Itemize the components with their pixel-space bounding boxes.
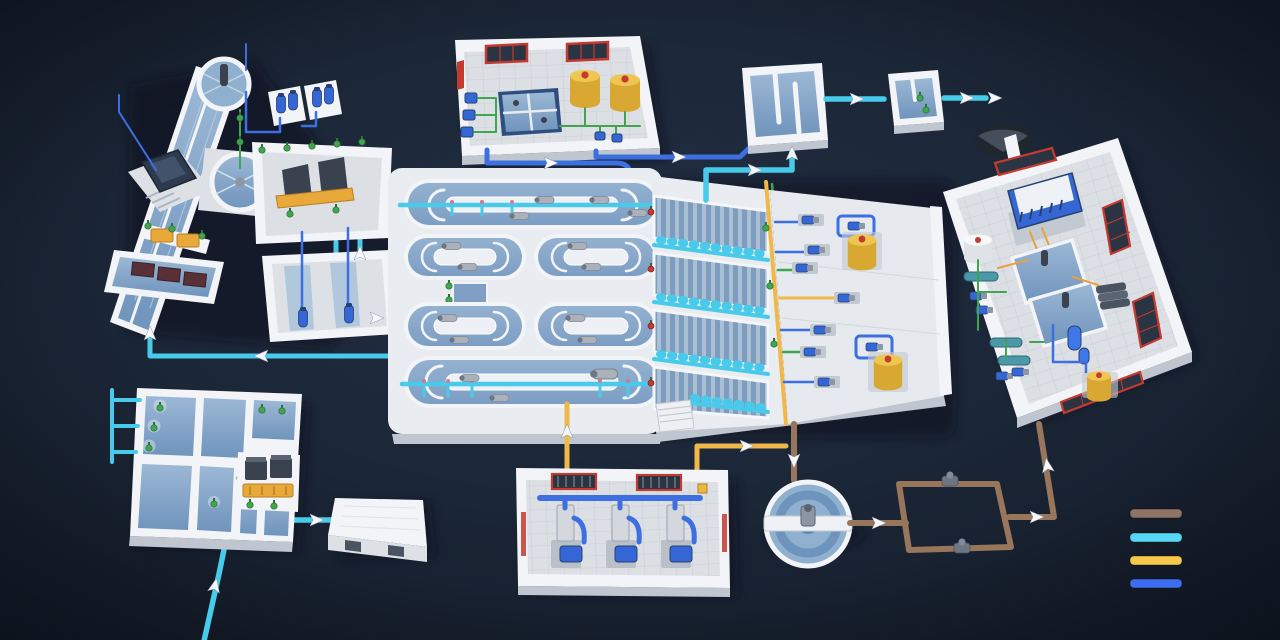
oxidation-ditch [404,234,526,280]
legend-swatch-sludge [1130,509,1182,518]
door [388,545,404,557]
pump-gallery [770,190,952,424]
chemical-tank [610,74,640,112]
legend-swatch-water [1130,533,1182,542]
basin-mixer [1041,250,1048,266]
window [486,44,527,63]
door [345,540,361,552]
window [637,475,681,490]
mixing-basin [498,88,562,136]
chemical-dosing-building [455,36,660,165]
wall-marking [521,512,526,556]
basin-mixer [1062,292,1069,308]
west-header-pipe [112,390,140,462]
stacked-press-unit [1096,282,1131,310]
legend-swatch-chemical [1130,579,1182,588]
sampling-tank [888,70,944,134]
wall-marking [722,514,727,552]
transfer-pump [595,132,605,140]
scraper-hub [235,177,245,187]
yellow-drum [1082,371,1118,401]
plant-illustration [0,0,1280,640]
screen-module [157,267,180,282]
side-door [457,60,464,90]
pretreatment-basin-complex [112,388,302,552]
legend-swatch-air [1130,556,1182,565]
scene-svg [0,0,1280,640]
oxidation-ditch [534,234,658,280]
platform-stairs [656,400,694,432]
chemical-tank [570,70,600,108]
window [567,42,608,61]
contact-tank [742,63,828,154]
screen-module [183,272,206,287]
control-box [698,484,707,493]
screen-unit [177,234,199,247]
screen-module [131,262,154,277]
window [552,474,596,489]
sludge-pump-skid [236,452,300,512]
screen-rake [220,64,228,86]
grit-classifier-room [252,136,392,244]
gravity-thickener [764,482,852,566]
transfer-pump [612,134,622,142]
